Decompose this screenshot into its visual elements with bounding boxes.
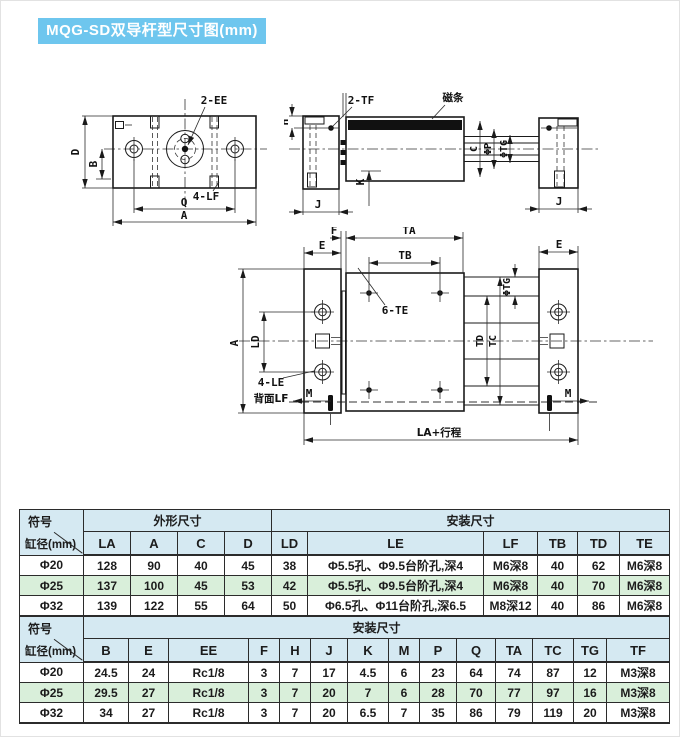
dimension-lines: [238, 231, 589, 445]
value-cell: 70: [578, 576, 620, 596]
dim-label-m-left: M: [306, 387, 313, 400]
dim-label-phip: ΦP: [483, 143, 494, 155]
col-header: TD: [578, 532, 620, 556]
dimension-lines: [82, 107, 256, 226]
catalog-page: MQG-SD双导杆型尺寸图(mm): [0, 0, 680, 737]
value-cell: 20: [311, 703, 348, 724]
col-header: K: [348, 639, 389, 663]
value-cell: 40: [178, 555, 225, 576]
col-header: C: [178, 532, 225, 556]
value-cell: 40: [538, 596, 578, 617]
corner-diagonal: [20, 617, 83, 662]
group-header-mount: 安装尺寸: [84, 617, 670, 639]
value-cell: 77: [496, 683, 533, 703]
group-header-outline: 外形尺寸: [84, 510, 272, 532]
value-cell: 79: [496, 703, 533, 724]
value-cell: M3深8: [607, 662, 670, 683]
col-header: TG: [574, 639, 607, 663]
value-cell: 29.5: [84, 683, 129, 703]
value-cell: 64: [457, 662, 496, 683]
table-row: Φ32 34 27 Rc1/8 3 7 20 6.5 7 35 86 79 11…: [20, 703, 670, 724]
value-cell: 62: [578, 555, 620, 576]
value-cell: 100: [131, 576, 178, 596]
dim-label-k: K: [354, 178, 367, 185]
value-cell: 86: [578, 596, 620, 617]
col-header: A: [131, 532, 178, 556]
value-cell: 119: [533, 703, 574, 724]
value-cell: Φ6.5孔、Φ11台阶孔,深6.5: [308, 596, 484, 617]
value-cell: M6深8: [484, 555, 538, 576]
value-cell: Rc1/8: [169, 703, 249, 724]
value-cell: Rc1/8: [169, 683, 249, 703]
value-cell: 17: [311, 662, 348, 683]
magnet-strip: [348, 120, 462, 130]
value-cell: 87: [533, 662, 574, 683]
col-header: LE: [308, 532, 484, 556]
bore-cell: Φ20: [20, 662, 84, 683]
value-cell: 27: [129, 703, 169, 724]
value-cell: 90: [131, 555, 178, 576]
plan-view-drawing: F TA E TB E ΦTG TD TC A LD 6-TE 4-LE 背面L…: [229, 227, 659, 449]
dim-label-d: D: [69, 148, 82, 155]
dim-label-la-stroke: LA+行程: [417, 426, 462, 439]
value-cell: 64: [225, 596, 272, 617]
col-header: P: [420, 639, 457, 663]
value-cell: M8深12: [484, 596, 538, 617]
corner-header: 符号 缸径(mm): [20, 510, 84, 556]
dim-label-a: A: [229, 339, 241, 346]
dim-label-e-left: E: [319, 239, 326, 252]
value-cell: 20: [311, 683, 348, 703]
dim-label-j-left: J: [315, 198, 322, 211]
left-end-plate: [294, 116, 339, 189]
value-cell: 16: [574, 683, 607, 703]
bore-cell: Φ32: [20, 703, 84, 724]
col-header: B: [84, 639, 129, 663]
table-row: Φ32 139 122 55 64 50 Φ6.5孔、Φ11台阶孔,深6.5 M…: [20, 596, 670, 617]
col-header: D: [225, 532, 272, 556]
dim-label-b: B: [87, 160, 100, 167]
page-title: MQG-SD双导杆型尺寸图(mm): [38, 18, 266, 44]
value-cell: M6深8: [484, 576, 538, 596]
col-header: H: [280, 639, 311, 663]
value-cell: 24.5: [84, 662, 129, 683]
dim-label-4le: 4-LE: [258, 376, 285, 389]
value-cell: 45: [178, 576, 225, 596]
dim-label-2tf: 2-TF: [348, 94, 375, 107]
col-header: Q: [457, 639, 496, 663]
value-cell: 55: [178, 596, 225, 617]
value-cell: 28: [420, 683, 457, 703]
col-header: F: [249, 639, 280, 663]
cushion-pin: [328, 395, 333, 411]
value-cell: 7: [280, 662, 311, 683]
corner-header: 符号 缸径(mm): [20, 617, 84, 663]
col-header: TE: [620, 532, 670, 556]
table-row: Φ20 24.5 24 Rc1/8 3 7 17 4.5 6 23 64 74 …: [20, 662, 670, 683]
value-cell: Rc1/8: [169, 662, 249, 683]
value-cell: 7: [280, 703, 311, 724]
dim-label-m-right: M: [565, 387, 572, 400]
col-header: TC: [533, 639, 574, 663]
dim-label-td: TD: [475, 335, 486, 347]
value-cell: 7: [389, 703, 420, 724]
value-cell: 35: [420, 703, 457, 724]
bore-cell: Φ32: [20, 596, 84, 617]
value-cell: 137: [84, 576, 131, 596]
dim-label-4lf: 4-LF: [193, 190, 220, 203]
table-row: Φ20 128 90 40 45 38 Φ5.5孔、Φ9.5台阶孔,深4 M6深…: [20, 555, 670, 576]
value-cell: Φ5.5孔、Φ9.5台阶孔,深4: [308, 576, 484, 596]
value-cell: 40: [538, 555, 578, 576]
dim-label-e-right: E: [556, 238, 563, 251]
value-cell: 97: [533, 683, 574, 703]
value-cell: 42: [272, 576, 308, 596]
bore-cell: Φ25: [20, 576, 84, 596]
dim-label-h: H: [284, 119, 291, 126]
value-cell: 12: [574, 662, 607, 683]
value-cell: 45: [225, 555, 272, 576]
body-plate: [342, 268, 464, 411]
cushion-pin: [547, 395, 552, 411]
dim-label-phitg: ΦTG: [499, 140, 510, 158]
value-cell: 38: [272, 555, 308, 576]
col-header: LD: [272, 532, 308, 556]
value-cell: 6.5: [348, 703, 389, 724]
group-header-mount: 安装尺寸: [272, 510, 670, 532]
value-cell: Φ5.5孔、Φ9.5台阶孔,深4: [308, 555, 484, 576]
value-cell: 7: [280, 683, 311, 703]
dim-label-f: F: [331, 227, 338, 237]
col-header: J: [311, 639, 348, 663]
value-cell: 86: [457, 703, 496, 724]
value-cell: 3: [249, 703, 280, 724]
side-view-drawing: 2-TF 磁条 H K C ΦP ΦTG J J: [284, 89, 604, 219]
col-header: TB: [538, 532, 578, 556]
value-cell: 128: [84, 555, 131, 576]
bore-cell: Φ20: [20, 555, 84, 576]
dim-label-a: A: [181, 209, 188, 222]
value-cell: 40: [538, 576, 578, 596]
value-cell: 74: [496, 662, 533, 683]
corner-diagonal: [20, 510, 83, 555]
dim-label-phitg: ΦTG: [502, 278, 513, 296]
value-cell: M3深8: [607, 683, 670, 703]
dim-label-j-right: J: [556, 195, 563, 208]
right-end-plate: [539, 118, 578, 188]
front-view-drawing: 2-EE 4-LF D B Q A: [66, 89, 291, 233]
value-cell: 122: [131, 596, 178, 617]
value-cell: M3深8: [607, 703, 670, 724]
dim-label-q: Q: [181, 196, 188, 209]
value-cell: 23: [420, 662, 457, 683]
col-header: LA: [84, 532, 131, 556]
dim-label-tc: TC: [488, 335, 499, 347]
dim-label-6te: 6-TE: [382, 304, 409, 317]
value-cell: 139: [84, 596, 131, 617]
value-cell: 70: [457, 683, 496, 703]
dim-label-ld: LD: [249, 335, 262, 349]
dim-label-c: C: [469, 146, 480, 152]
value-cell: M6深8: [620, 596, 670, 617]
value-cell: 4.5: [348, 662, 389, 683]
value-cell: 34: [84, 703, 129, 724]
col-header: LF: [484, 532, 538, 556]
dim-label-ta: TA: [402, 227, 416, 237]
table-row: Φ25 29.5 27 Rc1/8 3 7 20 7 6 28 70 77 97…: [20, 683, 670, 703]
col-header: TA: [496, 639, 533, 663]
value-cell: 53: [225, 576, 272, 596]
col-header: E: [129, 639, 169, 663]
col-header: M: [389, 639, 420, 663]
value-cell: 50: [272, 596, 308, 617]
value-cell: 6: [389, 683, 420, 703]
value-cell: 24: [129, 662, 169, 683]
dim-label-2ee: 2-EE: [201, 94, 228, 107]
value-cell: 20: [574, 703, 607, 724]
value-cell: 3: [249, 683, 280, 703]
outline-mount-dimension-table: 符号 缸径(mm) 外形尺寸 安装尺寸 LA A C D LD LE LF TB…: [19, 509, 670, 617]
col-header: EE: [169, 639, 249, 663]
bore-cell: Φ25: [20, 683, 84, 703]
value-cell: 27: [129, 683, 169, 703]
value-cell: 3: [249, 662, 280, 683]
table-row: Φ25 137 100 45 53 42 Φ5.5孔、Φ9.5台阶孔,深4 M6…: [20, 576, 670, 596]
dim-label-back-lf: 背面LF: [254, 392, 289, 405]
col-header: TF: [607, 639, 670, 663]
value-cell: M6深8: [620, 576, 670, 596]
magnet-strip-label: 磁条: [443, 91, 464, 104]
value-cell: M6深8: [620, 555, 670, 576]
mount-dimension-table: 符号 缸径(mm) 安装尺寸 B E EE F H J K M P Q TA T…: [19, 616, 670, 724]
value-cell: 6: [389, 662, 420, 683]
value-cell: 7: [348, 683, 389, 703]
dim-label-tb: TB: [398, 249, 412, 262]
